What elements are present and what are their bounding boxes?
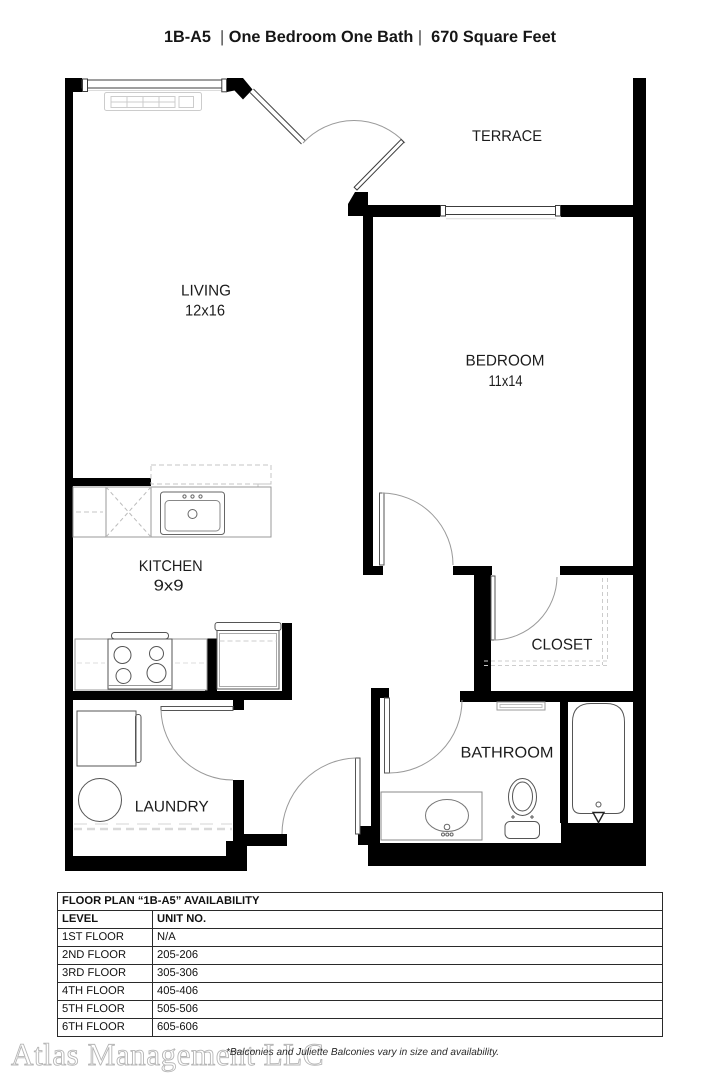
svg-text:BEDROOM: BEDROOM	[466, 353, 545, 370]
svg-text:TERRACE: TERRACE	[472, 128, 542, 145]
svg-text:11x14: 11x14	[489, 373, 523, 390]
svg-text:KITCHEN: KITCHEN	[139, 558, 203, 575]
svg-text:9x9: 9x9	[154, 578, 184, 595]
svg-text:BATHROOM: BATHROOM	[461, 745, 554, 762]
svg-text:LAUNDRY: LAUNDRY	[135, 799, 209, 816]
svg-text:CLOSET: CLOSET	[532, 637, 594, 654]
svg-text:12x16: 12x16	[185, 303, 225, 320]
svg-text:LIVING: LIVING	[181, 283, 231, 300]
